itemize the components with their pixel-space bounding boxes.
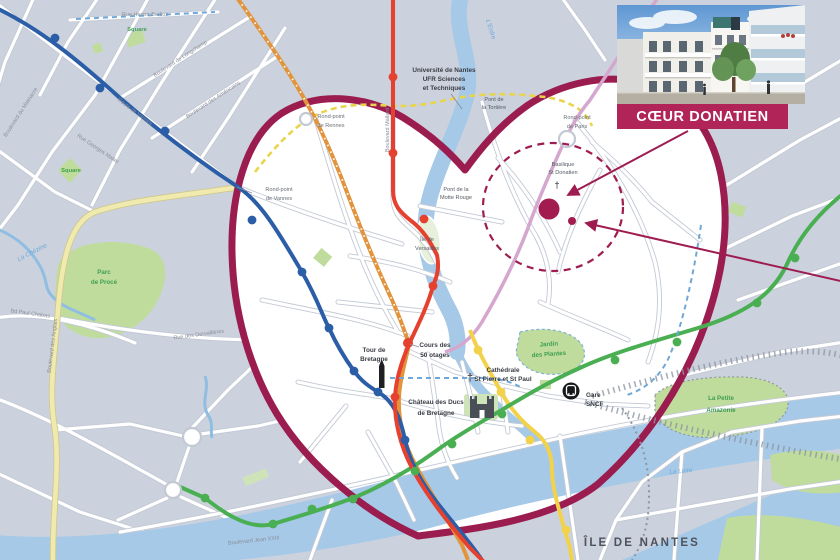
label-pont-motte-rouge-2: Motte Rouge bbox=[440, 195, 472, 201]
project-banner: CŒUR DONATIEN bbox=[617, 104, 788, 129]
label-tour-bretagne-2: Bretagne bbox=[360, 356, 388, 363]
photo-building-right bbox=[749, 5, 805, 104]
secondary-site-marker bbox=[568, 217, 576, 225]
label-square-w: Square bbox=[61, 168, 81, 174]
label-ile-de-nantes: ÎLE DE NANTES bbox=[583, 536, 700, 549]
label-petite-amazonie: La Petite bbox=[708, 395, 734, 402]
label-cathedrale: Cathédrale bbox=[486, 367, 519, 374]
label-ile-versailles-2: Versailles bbox=[415, 246, 439, 252]
label-rond-point-vannes-2: de Vannes bbox=[266, 196, 293, 202]
promotional-map: Université de Nantes UFR Sciences et Tec… bbox=[0, 0, 840, 560]
gare-sncf-icon bbox=[563, 383, 580, 400]
building-photo bbox=[617, 5, 805, 104]
label-pont-tortiere-2: la Tortière bbox=[482, 105, 506, 111]
project-site-marker bbox=[539, 199, 560, 220]
label-rond-point-rennes: Rond-point bbox=[317, 114, 345, 120]
cathedrale-cross-icon: † bbox=[467, 372, 473, 384]
street-mallard: Boulevard Mallard bbox=[385, 108, 391, 152]
label-cours-otages-2: 50 otages bbox=[420, 352, 450, 359]
project-banner-title: CŒUR DONATIEN bbox=[636, 109, 768, 125]
label-chateau: Château des Ducs bbox=[408, 399, 464, 406]
label-rond-point-vannes: Rond-point bbox=[265, 187, 293, 193]
label-universite: Université de Nantes bbox=[412, 67, 476, 74]
street-berlioz: Rue Hector Berlioz bbox=[122, 12, 168, 18]
label-petite-amazonie-2: Amazonie bbox=[706, 407, 736, 414]
label-rond-point-paris-2: de Paris bbox=[567, 124, 588, 130]
label-rond-point-rennes-2: de Rennes bbox=[317, 123, 344, 129]
label-jardin-plantes: Jardin bbox=[539, 340, 558, 348]
project-photo-insert bbox=[617, 5, 805, 104]
label-basilique: Basilique bbox=[552, 162, 575, 168]
label-tour-bretagne: Tour de bbox=[363, 347, 386, 354]
label-universite-2: UFR Sciences bbox=[423, 76, 466, 83]
basilique-cross-icon: † bbox=[554, 180, 559, 190]
label-cours-otages: Cours des bbox=[419, 342, 451, 349]
label-gare-2: SNCF bbox=[586, 401, 603, 408]
label-basilique-2: St Donatien bbox=[548, 170, 577, 176]
photo-street bbox=[617, 93, 805, 104]
label-rond-point-paris: Rond-point bbox=[563, 115, 591, 121]
label-ile-versailles: Île de bbox=[419, 236, 434, 243]
label-parc-proce-2: de Procé bbox=[91, 279, 118, 286]
label-parc-proce: Parc bbox=[97, 269, 111, 276]
label-pont-tortiere: Pont de bbox=[484, 97, 503, 103]
label-gare: Gare bbox=[586, 392, 601, 399]
label-square-nw: Square bbox=[127, 27, 147, 33]
label-chateau-2: de Bretagne bbox=[418, 410, 455, 417]
photo-curb bbox=[617, 92, 805, 94]
label-cathedrale-2: St Pierre et St Paul bbox=[474, 376, 531, 383]
label-pont-motte-rouge: Pont de la bbox=[443, 187, 469, 193]
label-universite-3: et Techniques bbox=[423, 85, 466, 92]
